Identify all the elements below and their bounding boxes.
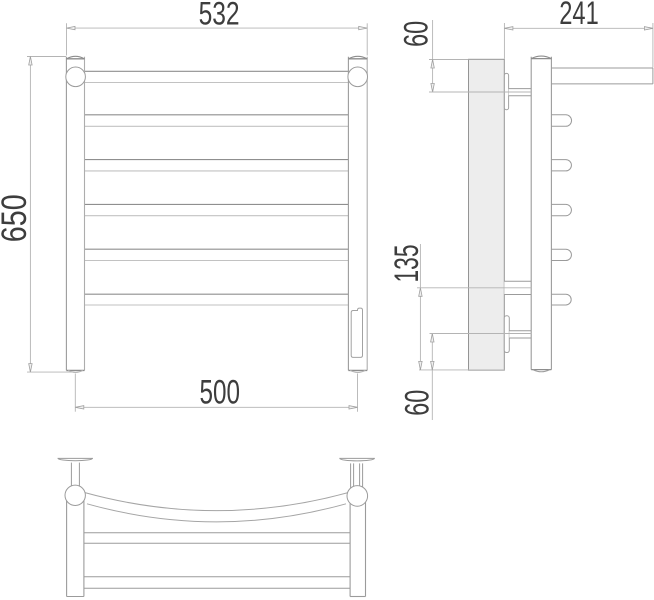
svg-text:241: 241 <box>559 0 599 31</box>
svg-text:60: 60 <box>398 21 436 47</box>
svg-text:500: 500 <box>200 373 241 411</box>
svg-text:60: 60 <box>398 390 436 416</box>
svg-text:650: 650 <box>0 194 34 242</box>
svg-text:135: 135 <box>388 245 426 283</box>
svg-text:532: 532 <box>199 0 240 31</box>
